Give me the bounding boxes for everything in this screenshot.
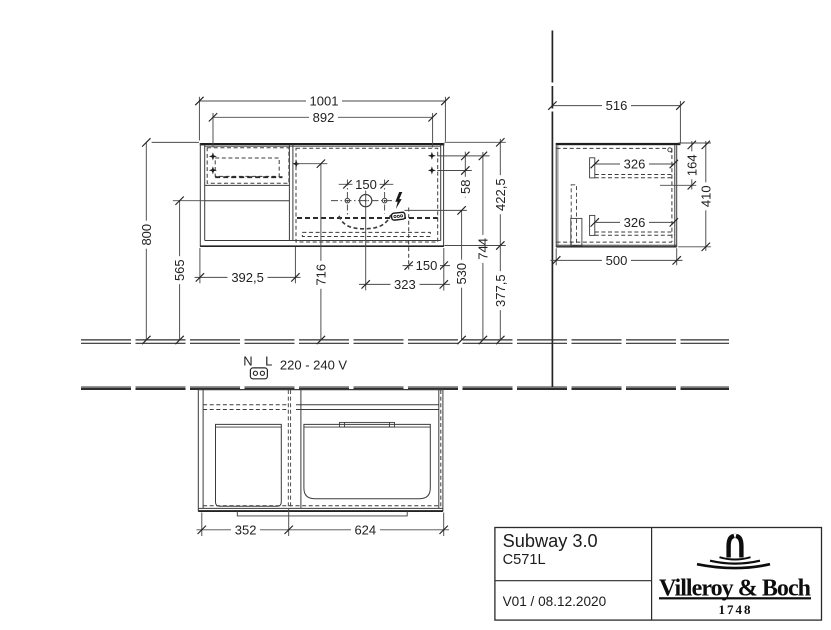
svg-text:220 - 240 V: 220 - 240 V	[280, 357, 348, 372]
svg-text:V01 / 08.12.2020: V01 / 08.12.2020	[503, 594, 607, 609]
svg-text:530: 530	[454, 263, 469, 285]
svg-text:516: 516	[606, 98, 628, 113]
svg-text:392,5: 392,5	[231, 270, 264, 285]
svg-text:L: L	[265, 353, 272, 368]
svg-text:422,5: 422,5	[493, 178, 508, 211]
svg-text:58: 58	[458, 180, 473, 194]
svg-text:624: 624	[354, 522, 376, 537]
svg-text:N: N	[243, 353, 252, 368]
svg-text:410: 410	[698, 185, 713, 207]
svg-text:326: 326	[624, 215, 646, 230]
svg-text:892: 892	[313, 110, 335, 125]
svg-text:1001: 1001	[310, 94, 339, 109]
svg-text:500: 500	[606, 253, 628, 268]
svg-text:326: 326	[624, 157, 646, 172]
svg-text:C571L: C571L	[503, 552, 546, 568]
svg-text:565: 565	[172, 259, 187, 281]
svg-text:1748: 1748	[719, 602, 753, 617]
svg-text:352: 352	[235, 522, 257, 537]
svg-text:Subway 3.0: Subway 3.0	[503, 531, 598, 551]
svg-text:800: 800	[139, 224, 154, 246]
svg-text:150: 150	[355, 177, 377, 192]
svg-text:377,5: 377,5	[493, 274, 508, 307]
svg-text:164: 164	[684, 154, 699, 176]
svg-text:150: 150	[416, 258, 438, 273]
svg-text:744: 744	[476, 238, 491, 260]
svg-text:323: 323	[394, 277, 416, 292]
svg-text:716: 716	[314, 264, 329, 286]
